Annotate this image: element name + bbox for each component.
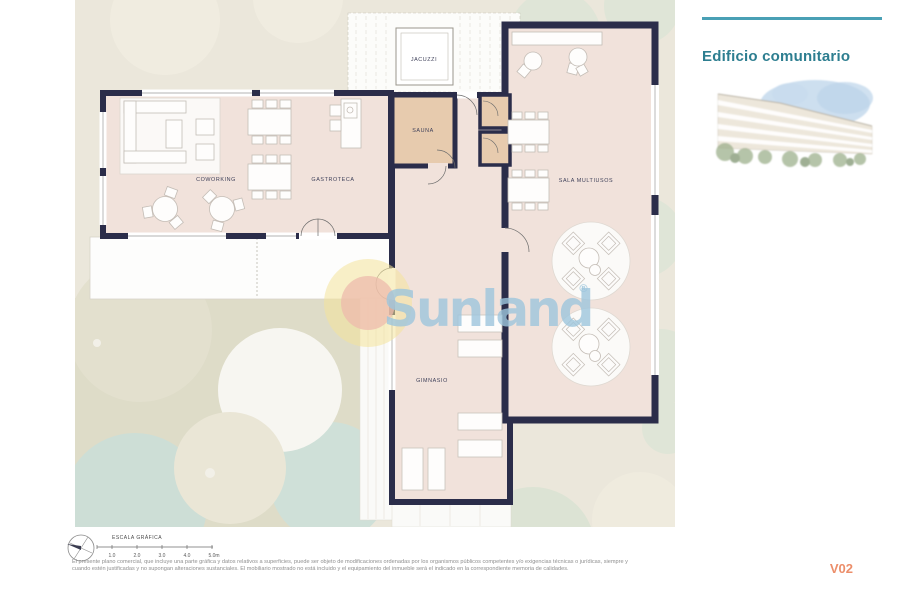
armchair (196, 144, 214, 160)
north-arrow (67, 535, 94, 561)
jacuzzi-label: JACUZZI (411, 57, 437, 63)
tree-circle (592, 472, 688, 568)
deck-south (392, 503, 511, 527)
dining-table-2 (248, 155, 291, 199)
room-wc-1 (480, 95, 510, 128)
watermark-text: Sunland (383, 280, 591, 338)
panel-rule (702, 17, 882, 20)
gimnasio-label: GIMNASIO (416, 378, 448, 384)
registered-mark: ® (578, 282, 589, 295)
scale-title: ESCALA GRÁFICA (112, 534, 162, 541)
room-wc-2 (480, 132, 510, 165)
coworking-label: COWORKING (196, 177, 236, 183)
building-illustration (700, 76, 890, 186)
sala-multiusos-label: SALA MULTIUSOS (559, 178, 613, 184)
scale-bar: ESCALA GRÁFICA 1.0 2.0 3.0 4.0 5.0m (97, 534, 220, 559)
meeting-table-1 (508, 112, 549, 152)
jacuzzi-deck: JACUZZI (348, 13, 520, 92)
sauna-label: SAUNA (412, 128, 434, 134)
meeting-table-2 (508, 170, 549, 210)
disclaimer-line-2: cuando estén justificadas y no supongan … (72, 566, 569, 572)
version-label: V02 (830, 561, 853, 576)
dining-table-1 (248, 100, 291, 144)
armchair (196, 119, 214, 135)
page-title: Edificio comunitario (702, 48, 900, 65)
gastroteca-label: GASTROTECA (311, 177, 354, 183)
counter (512, 32, 602, 45)
disclaimer-line-1: El presente plano comercial, que incluye… (72, 559, 628, 565)
